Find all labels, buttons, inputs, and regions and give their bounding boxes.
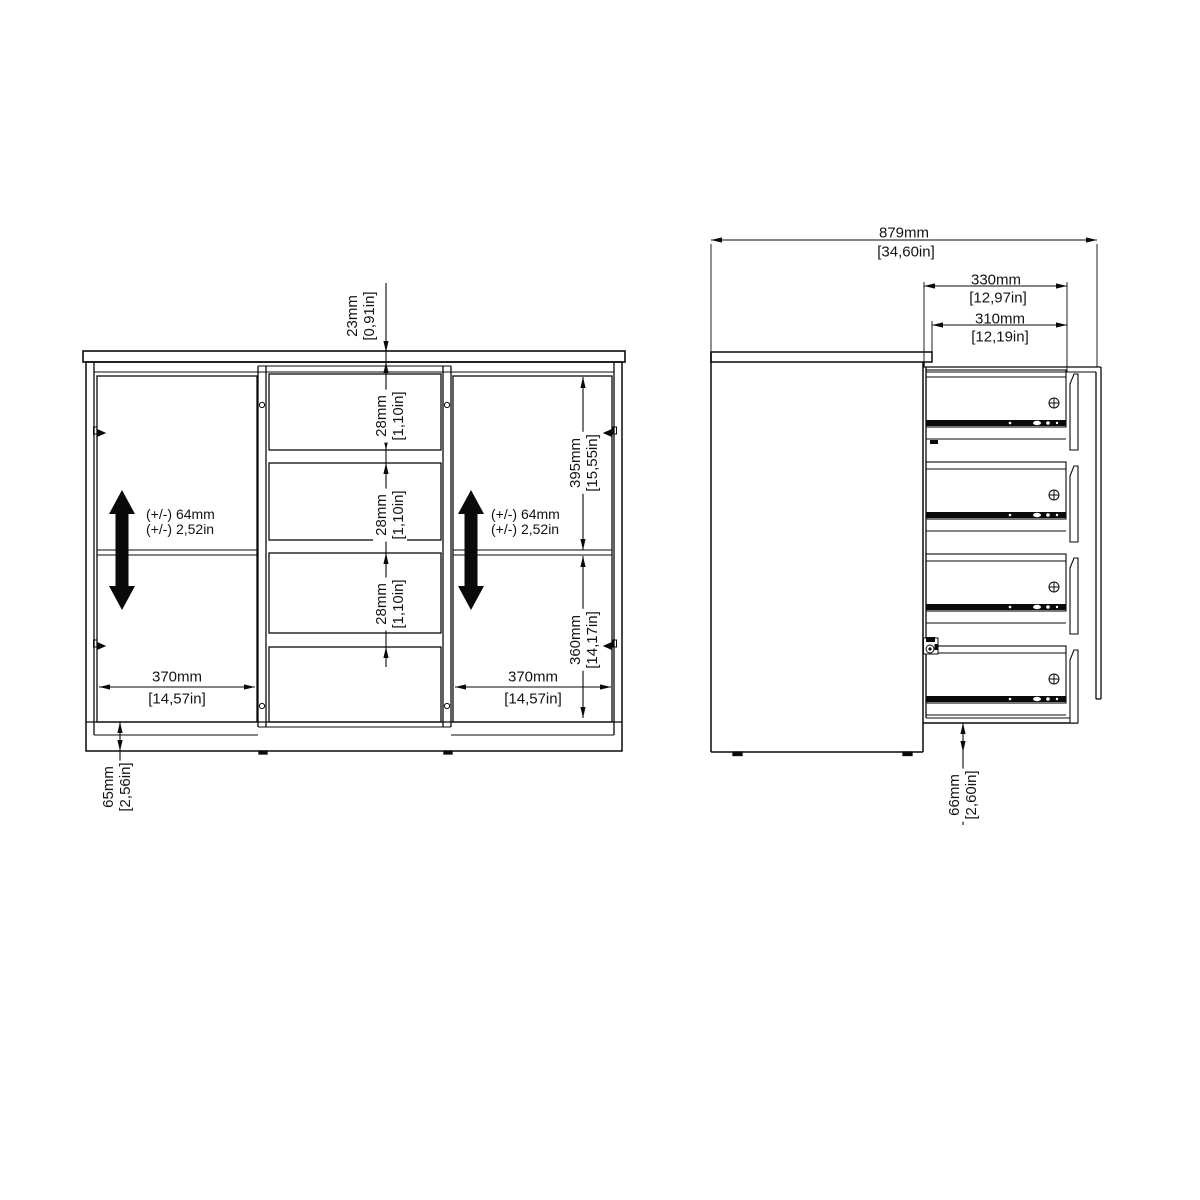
side-foot-right	[903, 752, 912, 756]
dim-lower-height: 360mm [14,17in]	[567, 609, 601, 671]
screw-icon	[1049, 490, 1059, 500]
screw-icon	[1049, 674, 1059, 684]
drawing-linework	[0, 0, 1200, 1200]
front-drawer-fronts	[269, 374, 441, 722]
screw-icon	[1049, 398, 1059, 408]
furniture-technical-drawing: 23mm [0,91in] 28mm [1,10in] 28mm [1,10in…	[0, 0, 1200, 1200]
dim-drawer-depth-inner-inch: [12,19in]	[971, 329, 1029, 346]
slide-lock-icon	[924, 637, 939, 654]
dim-base-height: 66mm [2,60in]	[946, 768, 980, 821]
dim-total-width-inch: [34,60in]	[877, 244, 935, 261]
dim-drawer-depth-outer-inch: [12,97in]	[969, 290, 1027, 307]
dim-door-width-right-mm: 370mm	[508, 669, 558, 686]
shelf-adjust-note-right: (+/-) 64mm (+/-) 2,52in	[491, 507, 560, 536]
shelf-pins	[259, 402, 449, 708]
dim-total-width-mm: 879mm	[879, 225, 929, 242]
dim-upper-height: 395mm [15,55in]	[567, 432, 601, 494]
dim-drawer-depth-outer-mm: 330mm	[971, 272, 1021, 289]
hinge-icons	[94, 427, 617, 650]
front-foot-right	[444, 751, 452, 754]
side-drawer-1	[926, 370, 1078, 450]
side-drawer-2	[926, 462, 1078, 542]
dim-drawer-depth-inner-mm: 310mm	[975, 311, 1025, 328]
dim-plinth-height: 65mm [2,56in]	[100, 760, 134, 813]
side-drawer-3	[926, 554, 1078, 634]
dim-drawer-gap-2: 28mm [1,10in]	[373, 488, 407, 541]
front-foot-left	[259, 751, 267, 754]
side-drawer-4	[924, 637, 1079, 723]
dim-door-width-right-inch: [14,57in]	[504, 691, 562, 708]
side-view-drawers	[924, 370, 1079, 723]
dim-drawer-gap-3: 28mm [1,10in]	[373, 577, 407, 630]
dim-door-width-left-mm: 370mm	[152, 669, 202, 686]
dim-drawer-gap-1: 28mm [1,10in]	[373, 389, 407, 442]
dim-top-thickness: 23mm [0,91in]	[344, 289, 378, 342]
dim-door-width-left-inch: [14,57in]	[148, 691, 206, 708]
screw-icon	[1049, 582, 1059, 592]
shelf-adjust-note-left: (+/-) 64mm (+/-) 2,52in	[146, 507, 215, 536]
side-foot-left	[733, 752, 742, 756]
